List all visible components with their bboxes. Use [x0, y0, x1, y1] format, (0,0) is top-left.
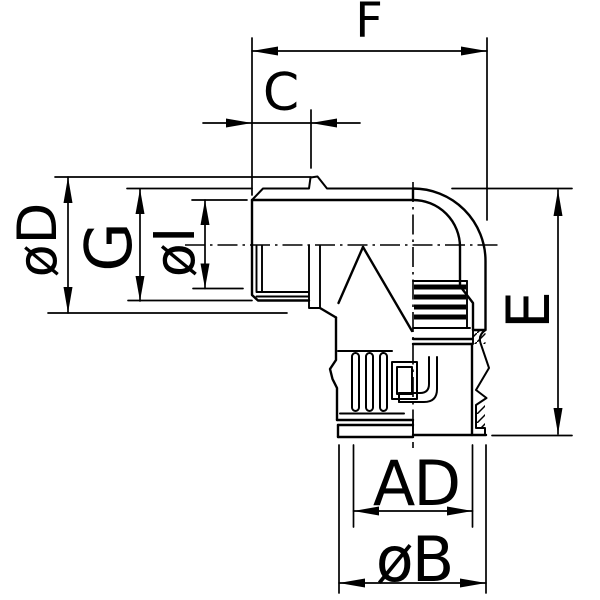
dim-oB-label: øB	[376, 523, 452, 596]
dim-C-arrow-left	[226, 119, 252, 128]
dim-C-arrow-right	[311, 119, 337, 128]
dim-E-arrow-bottom	[554, 408, 563, 434]
dim-AD: AD	[354, 445, 473, 527]
flange-chamfer	[320, 308, 336, 318]
thread-band-hatched	[252, 177, 413, 201]
dim-E: E	[452, 189, 572, 436]
dim-C-label: C	[263, 63, 299, 123]
flex-ribs	[352, 353, 387, 411]
technical-drawing-canvas: F C øD G øI E	[0, 0, 600, 600]
dim-oI-label: øI	[143, 227, 208, 278]
internal-cone-left	[339, 247, 364, 303]
dim-E-label: E	[494, 291, 564, 329]
spout-left-end	[252, 200, 309, 301]
dim-AD-label: AD	[373, 447, 459, 520]
dim-oD-arrow-top	[64, 177, 73, 203]
dim-oB-arrow-left	[339, 579, 365, 588]
dim-F-label: F	[355, 0, 383, 49]
dim-G-arrow-top	[136, 189, 145, 214]
dim-F-arrow-right	[461, 47, 487, 56]
dim-G-label: G	[73, 222, 147, 272]
technical-drawing-page: F C øD G øI E	[0, 0, 600, 600]
dim-oB-arrow-right	[460, 579, 486, 588]
body-left-edge	[330, 318, 337, 421]
dim-oD-arrow-bottom	[64, 287, 73, 313]
retaining-clip	[392, 357, 437, 402]
dim-C: C	[203, 63, 360, 168]
internal-cone-right	[363, 247, 412, 331]
spout-bore-edges	[257, 246, 321, 308]
dim-oD-label: øD	[6, 203, 69, 278]
dim-oI-arrow-top	[201, 200, 210, 225]
outer-thread-column	[473, 330, 489, 435]
dim-E-arrow-top	[554, 190, 563, 216]
dim-G-arrow-bottom	[136, 276, 145, 301]
dim-F-arrow-left	[252, 47, 278, 56]
bottom-flange	[338, 420, 413, 437]
